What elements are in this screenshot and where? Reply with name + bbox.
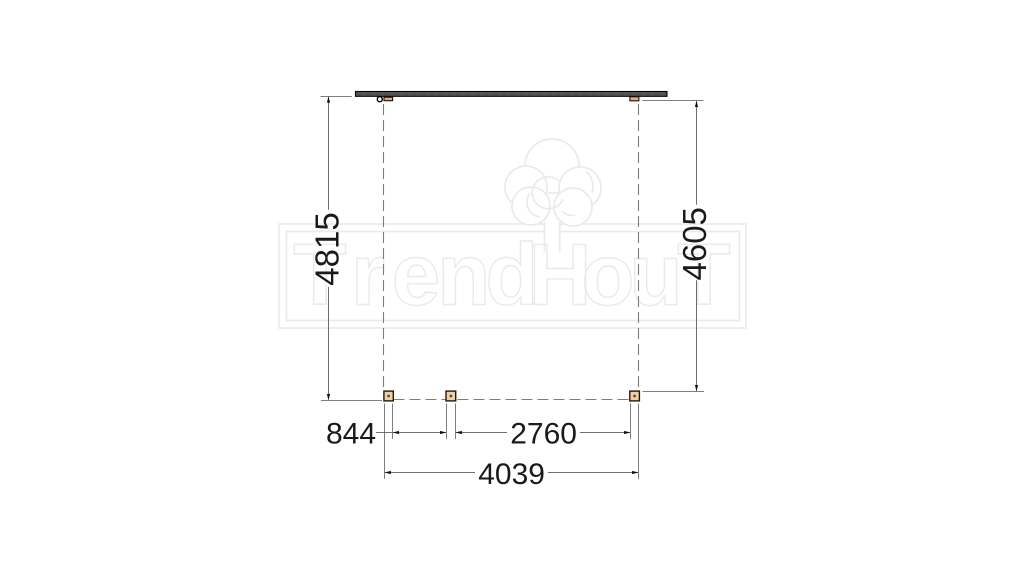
svg-text:r: r <box>351 227 385 324</box>
svg-text:e: e <box>392 227 440 324</box>
svg-text:u: u <box>629 227 682 324</box>
svg-text:o: o <box>581 227 634 324</box>
svg-text:4605: 4605 <box>676 207 713 280</box>
svg-text:4039: 4039 <box>478 458 545 491</box>
svg-text:4815: 4815 <box>308 212 345 285</box>
svg-text:844: 844 <box>326 418 376 451</box>
svg-text:n: n <box>437 227 490 324</box>
svg-text:2760: 2760 <box>510 418 577 451</box>
